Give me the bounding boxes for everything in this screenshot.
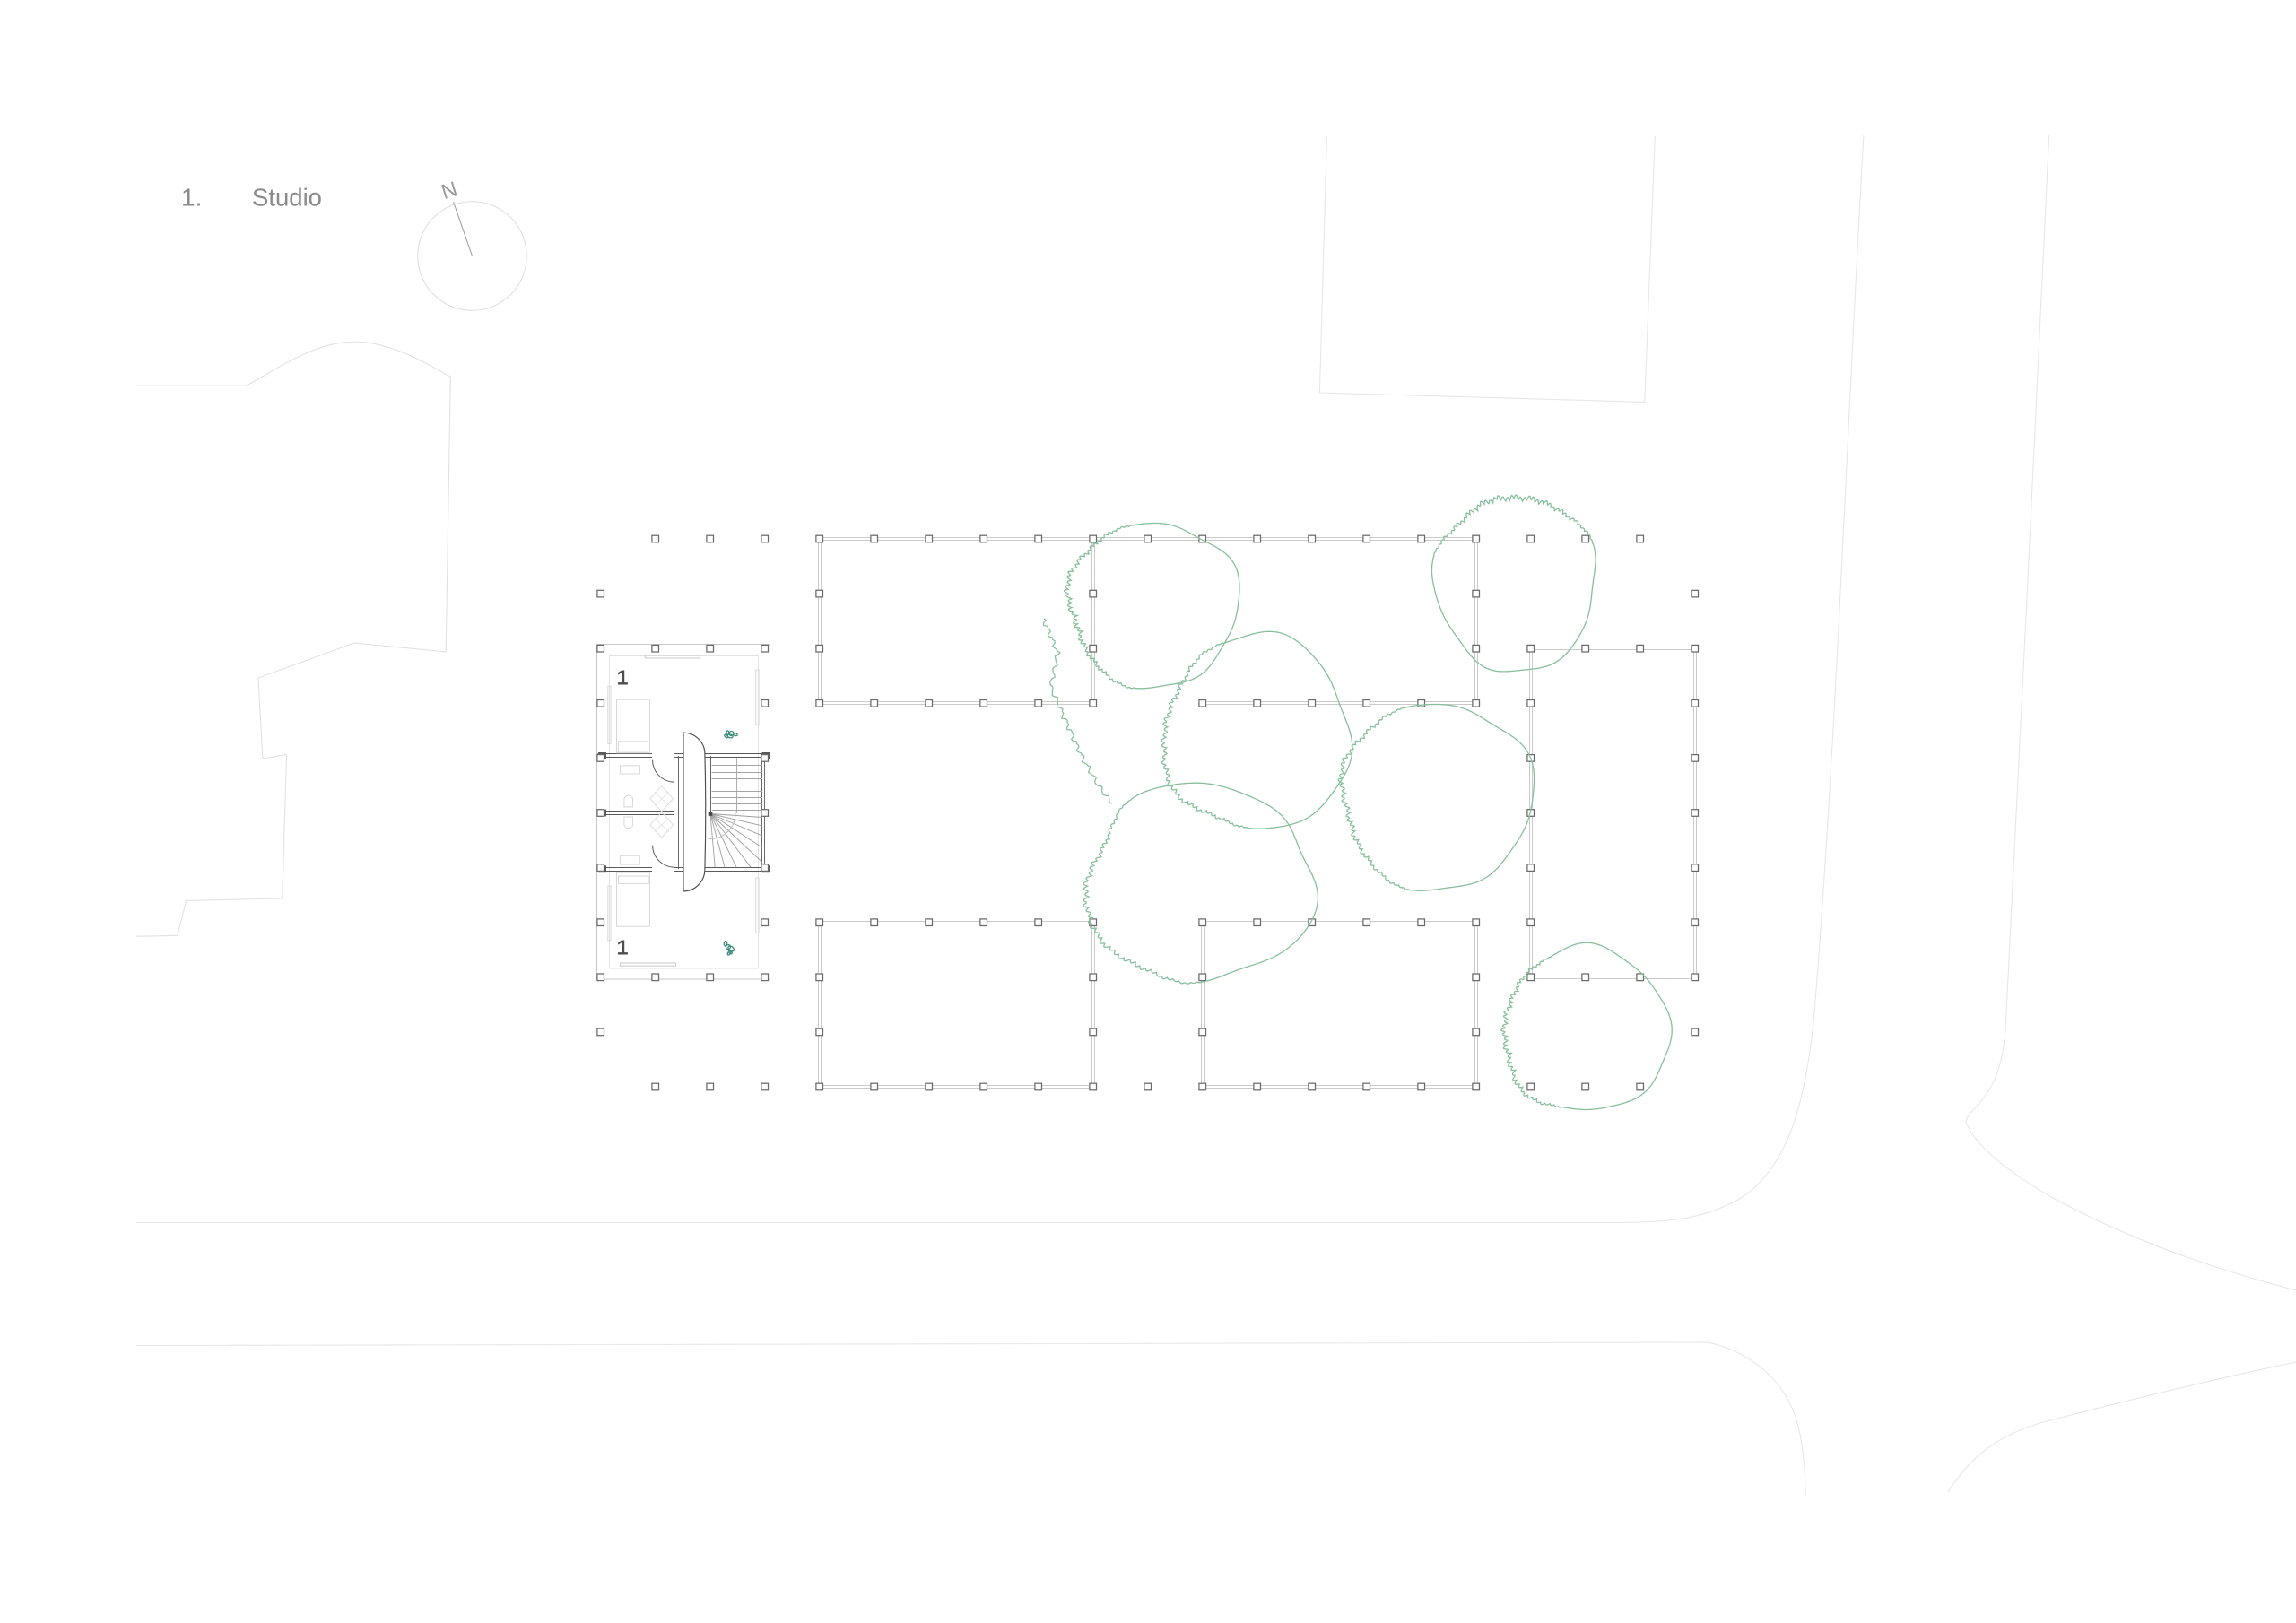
svg-text:1.: 1. bbox=[181, 184, 202, 212]
svg-text:1: 1 bbox=[617, 666, 629, 690]
svg-text:Studio: Studio bbox=[252, 184, 322, 212]
svg-text:1: 1 bbox=[617, 936, 629, 959]
